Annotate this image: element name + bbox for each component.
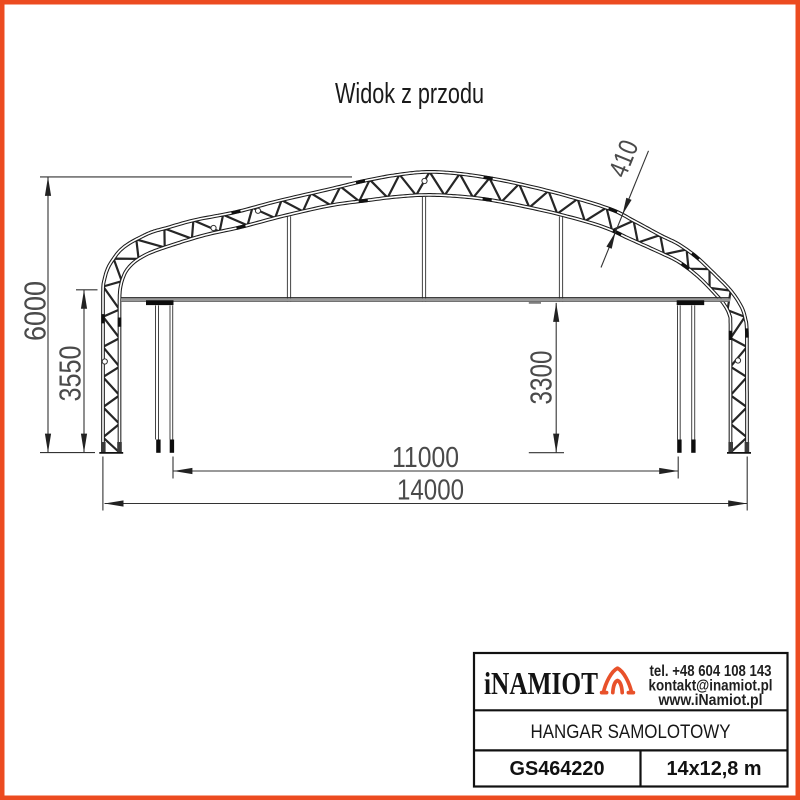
- svg-text:14000: 14000: [397, 475, 464, 507]
- svg-text:3550: 3550: [53, 346, 88, 402]
- svg-text:Widok z przodu: Widok z przodu: [335, 78, 484, 110]
- svg-text:14x12,8 m: 14x12,8 m: [667, 757, 762, 780]
- svg-text:GS464220: GS464220: [510, 757, 605, 780]
- svg-text:6000: 6000: [18, 281, 53, 341]
- svg-text:iNAMIOT: iNAMIOT: [484, 665, 598, 701]
- svg-text:3300: 3300: [524, 351, 559, 405]
- svg-text:www.iNamiot.pl: www.iNamiot.pl: [658, 692, 763, 709]
- svg-text:HANGAR SAMOLOTOWY: HANGAR SAMOLOTOWY: [531, 722, 731, 743]
- svg-text:11000: 11000: [392, 442, 459, 474]
